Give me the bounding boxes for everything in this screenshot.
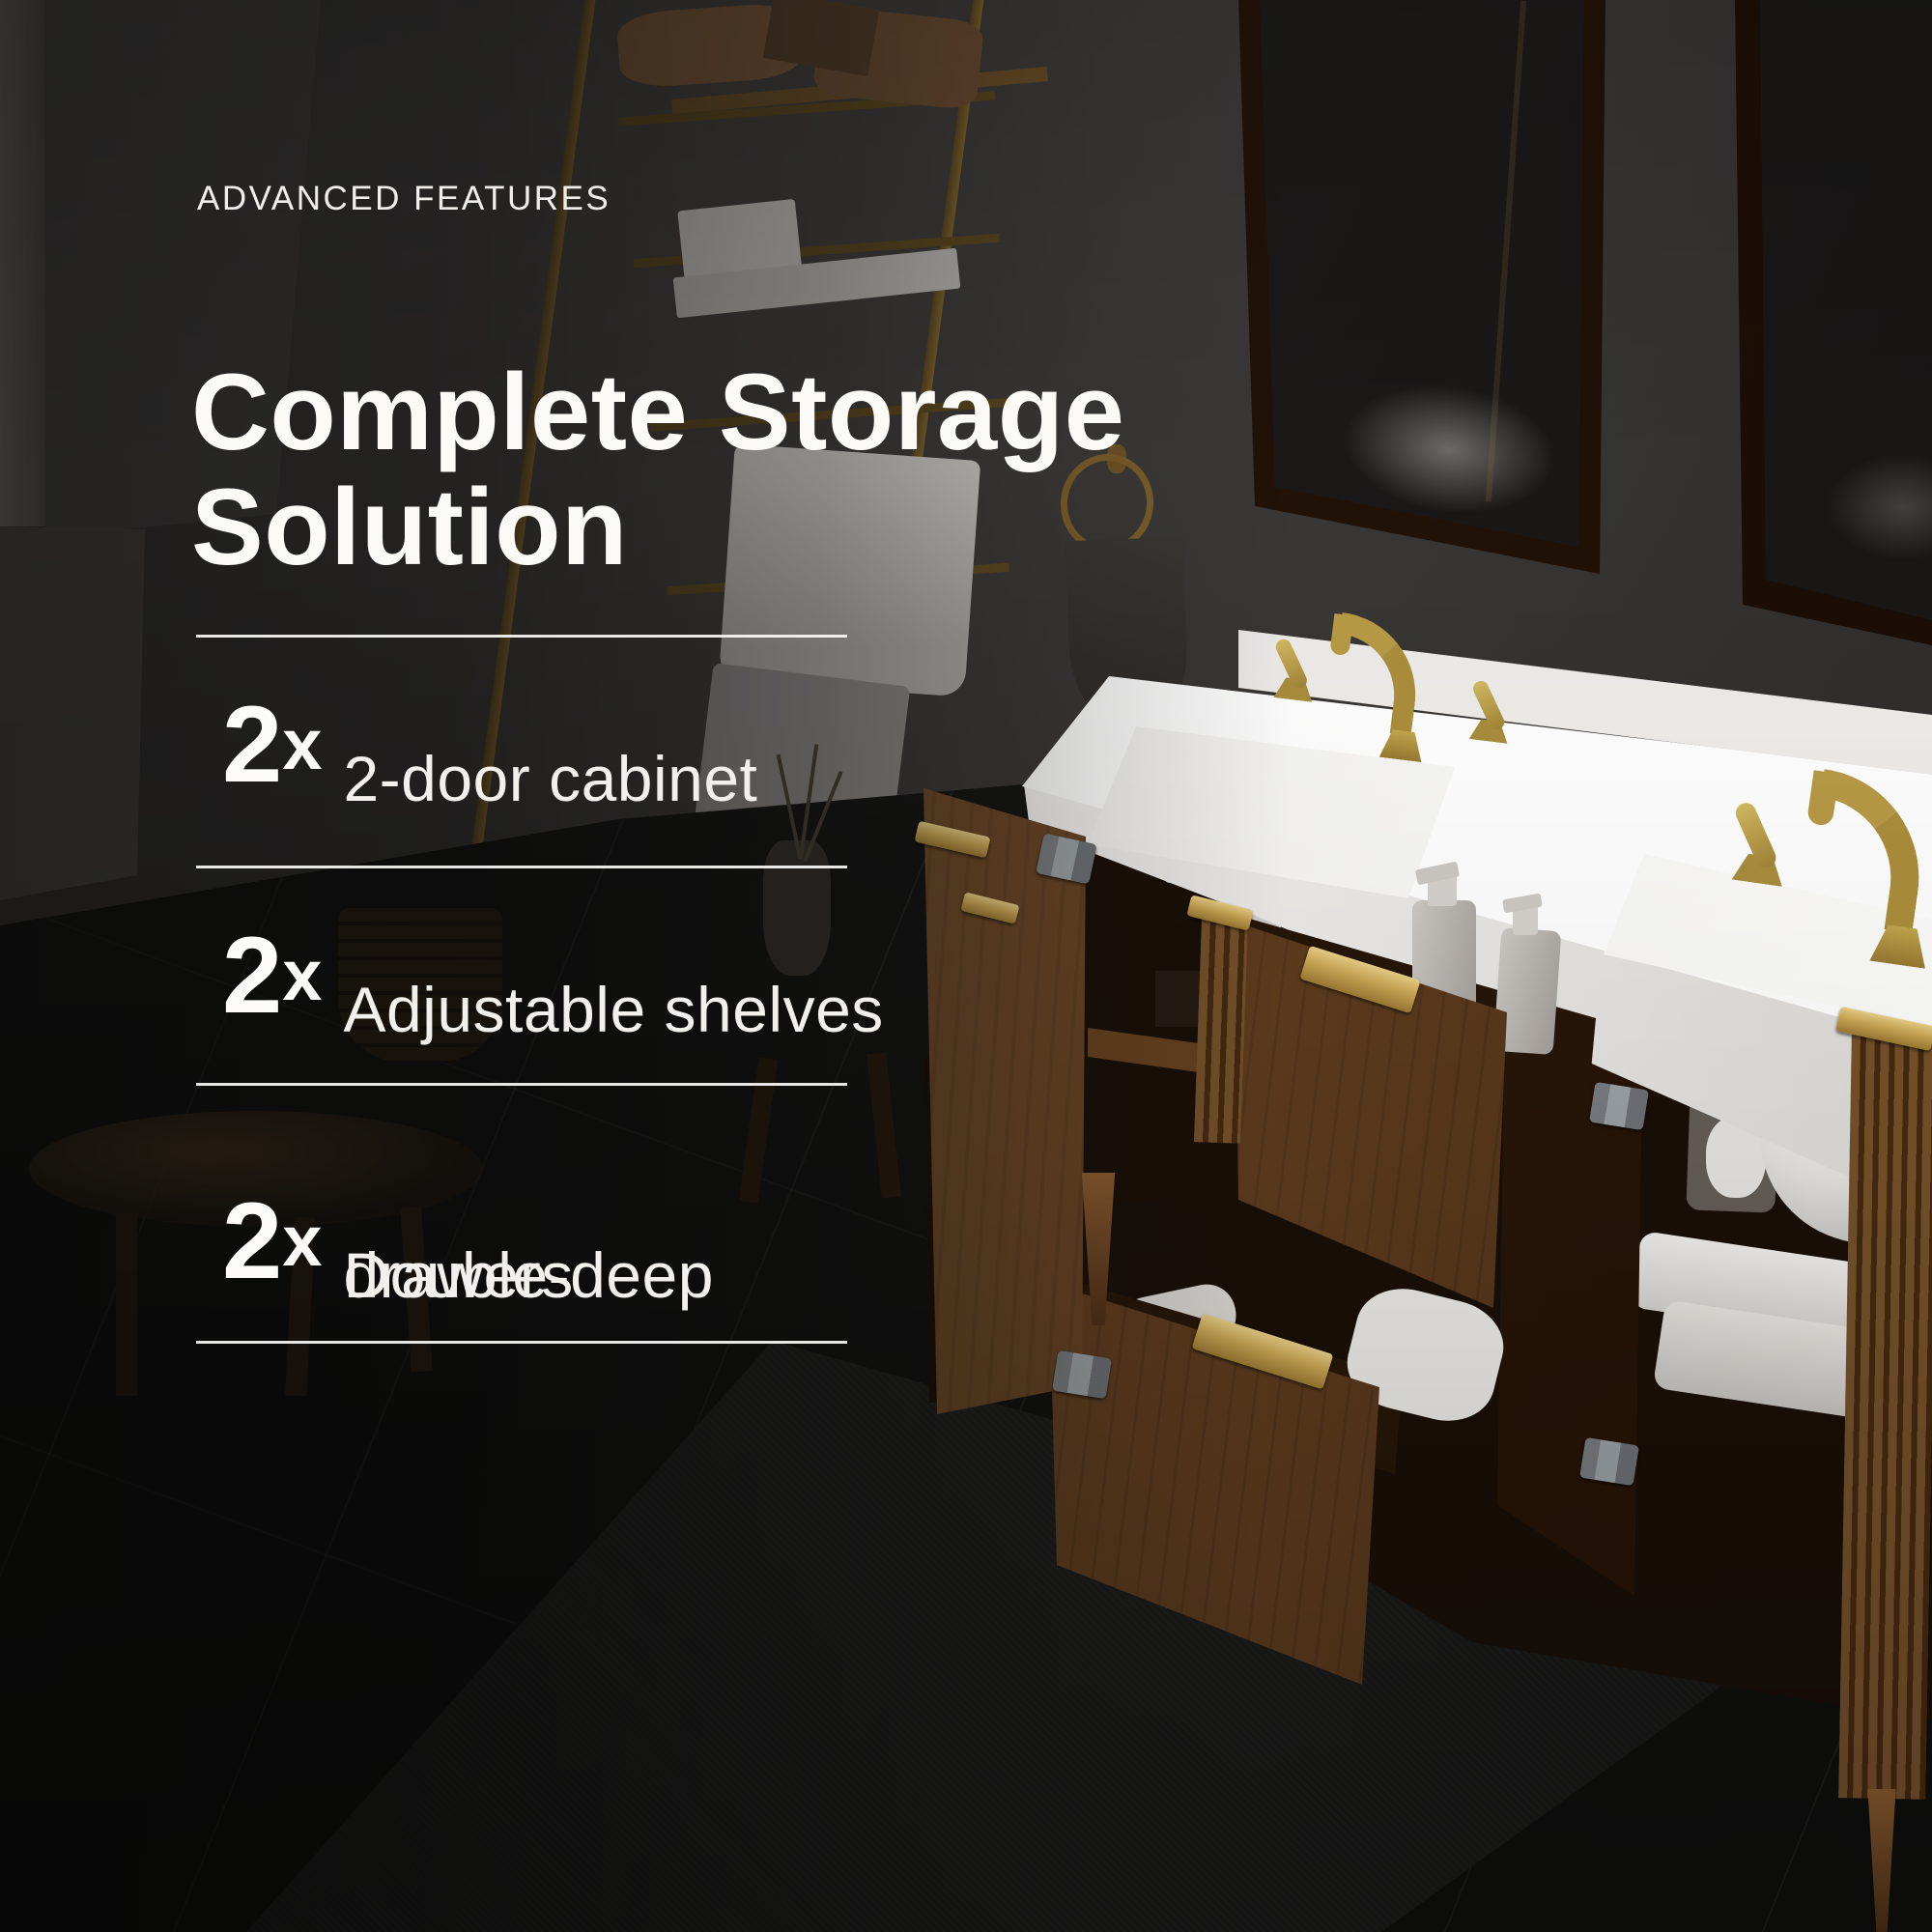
feature-qty: 2 <box>222 691 282 799</box>
page-title: Complete Storage Solution <box>191 355 1124 584</box>
feature-label-line2: drawers <box>343 1241 573 1310</box>
feature-label-line1: Adjustable shelves <box>343 976 883 1044</box>
product-infographic: ADVANCED FEATURES Complete Storage Solut… <box>0 0 1932 1932</box>
feature-row-cabinet: 2 x 2-door cabinet <box>222 663 1092 827</box>
divider-line <box>196 635 847 638</box>
feature-qty: 2 <box>222 922 282 1030</box>
eyebrow-label: ADVANCED FEATURES <box>197 180 611 218</box>
feature-times: x <box>282 940 322 1011</box>
divider-line <box>196 1341 847 1344</box>
feature-row-drawers: 2 x Double-deep drawers <box>222 1145 1092 1338</box>
title-line-2: Solution <box>191 470 1124 585</box>
title-line-1: Complete Storage <box>191 355 1124 470</box>
feature-times: x <box>282 1206 322 1277</box>
feature-qty: 2 <box>222 1187 282 1295</box>
divider-line <box>196 866 847 868</box>
feature-times: x <box>282 709 322 781</box>
feature-label-line1: 2-door cabinet <box>343 745 757 813</box>
divider-line <box>196 1083 847 1086</box>
feature-row-shelves: 2 x Adjustable shelves <box>222 894 1092 1058</box>
